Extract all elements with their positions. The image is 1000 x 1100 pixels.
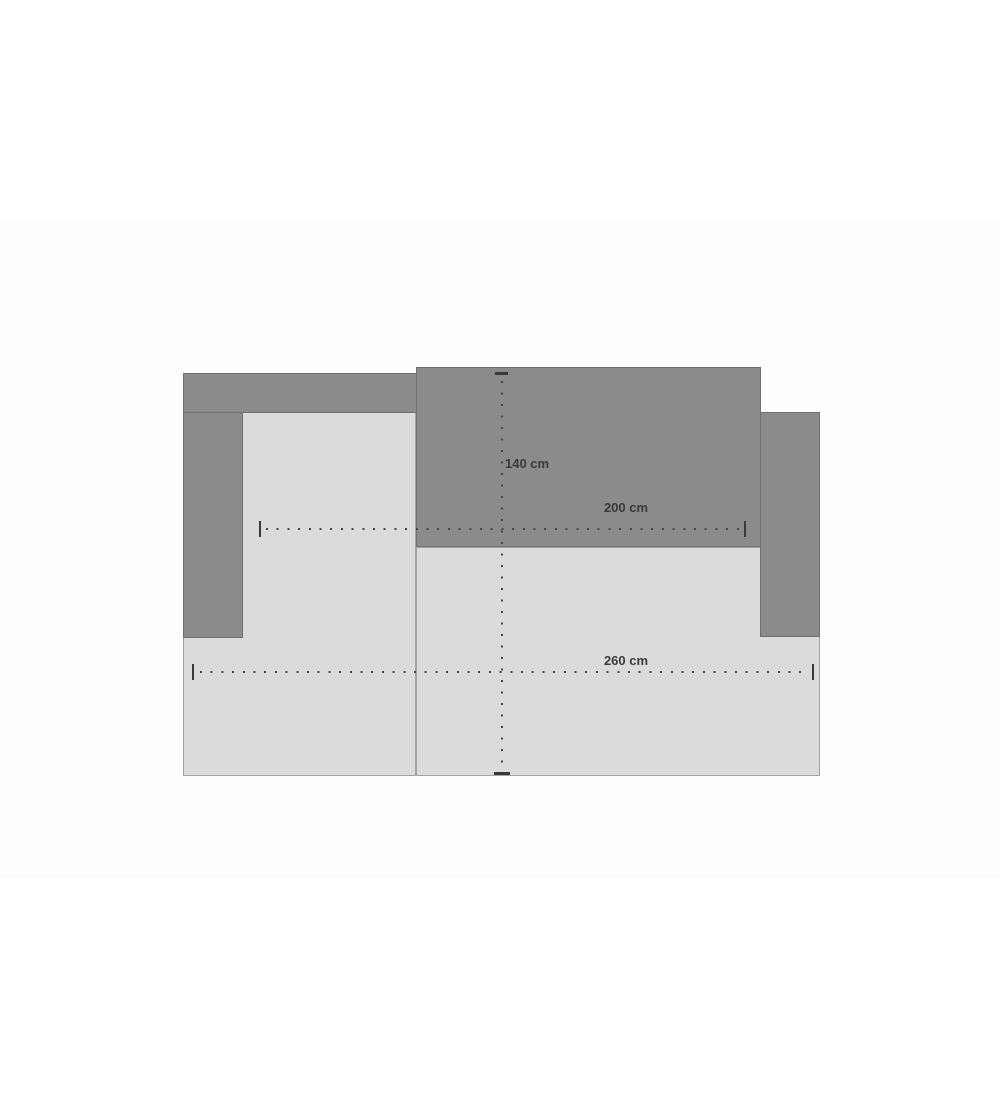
sofa-width-dimension-label: 200 cm — [576, 501, 676, 515]
depth-dimension-tick-bottom — [494, 772, 510, 775]
depth-dimension-line — [501, 381, 503, 769]
sofa-width-dimension-tick-right — [744, 521, 746, 537]
sofa-dimension-diagram: 140 cm 200 cm 260 cm — [0, 0, 1000, 1100]
main-backrest-panel — [416, 367, 761, 547]
total-width-dimension-tick-right — [812, 664, 814, 680]
sofa-width-dimension-line — [266, 528, 742, 530]
sofa-width-dimension-tick-left — [259, 521, 261, 537]
left-armrest-panel — [183, 412, 243, 638]
depth-dimension-label: 140 cm — [505, 457, 549, 471]
chaise-back-panel — [183, 373, 417, 413]
total-width-dimension-label: 260 cm — [576, 654, 676, 668]
depth-dimension-tick-top — [495, 372, 508, 375]
total-width-dimension-tick-left — [192, 664, 194, 680]
right-armrest-panel — [760, 412, 820, 637]
total-width-dimension-line — [200, 671, 808, 673]
